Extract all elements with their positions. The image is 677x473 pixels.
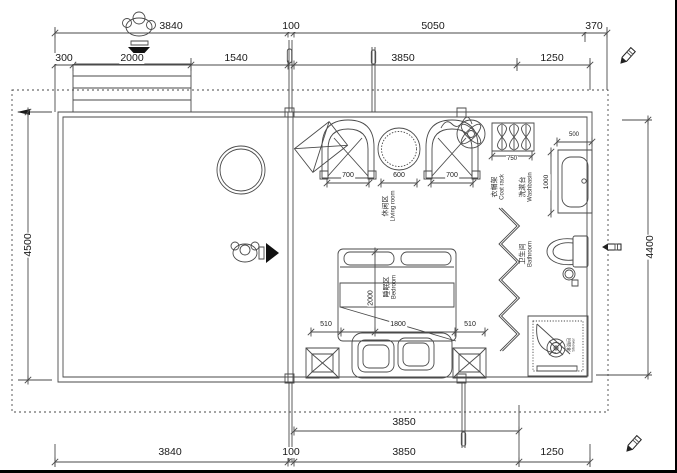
room-label-washbasin-en: Washbasin: [528, 172, 535, 201]
room-label-bathroom: 卫生间 Bathroom: [520, 241, 535, 267]
dim-chair-left-700: 700: [341, 172, 355, 179]
ceiling-fan-icon: [441, 117, 485, 148]
pen-icon-top-right: [619, 48, 636, 65]
dim-bottom2-3840: 3840: [157, 447, 182, 458]
dim-bottom2-100: 100: [281, 447, 301, 458]
dim-top-3840: 3840: [158, 21, 183, 32]
dim-top2-1540: 1540: [223, 53, 248, 64]
room-label-bathroom-en: Bathroom: [528, 241, 535, 267]
room-label-washbasin-zh: 洗漱台: [520, 172, 528, 201]
room-label-bedroom-en: Bedroom: [392, 275, 399, 299]
person-icon-room: [231, 242, 259, 262]
nightstand-right: [453, 348, 486, 378]
pen-icon-bottom-right: [625, 436, 642, 453]
dim-table-600: 600: [392, 172, 406, 179]
dim-right-4400: 4400: [645, 234, 656, 259]
dim-top-370: 370: [584, 21, 604, 32]
room-label-coat-rack: 衣帽架 Coat rack: [492, 174, 507, 200]
room-label-washbasin: 洗漱台 Washbasin: [520, 172, 535, 201]
dim-chair-right-700: 700: [445, 172, 459, 179]
nightstand-left: [306, 348, 339, 378]
dim-bed-1800: 1800: [389, 321, 407, 328]
steps: [73, 64, 191, 112]
dim-left-4500: 4500: [23, 232, 34, 257]
dimension-lines: [17, 27, 652, 467]
dim-basin-500: 500: [568, 132, 580, 138]
pen-icon-mid-right: [603, 244, 621, 250]
room-label-bedroom-zh: 睡眠区: [384, 275, 392, 299]
room-label-coat-rack-en: Coat rack: [500, 174, 507, 200]
room-label-living-en: Living room: [391, 190, 398, 221]
coffee-table: [378, 128, 420, 170]
bench-cushions: [352, 333, 452, 378]
room-label-bathroom-zh: 卫生间: [520, 241, 528, 267]
dim-top2-1250: 1250: [539, 53, 564, 64]
person-icon-entry: [123, 12, 156, 36]
dim-basin-1000: 1000: [544, 174, 551, 190]
side-table-diamond: [294, 122, 347, 173]
dim-top2-2000: 2000: [119, 53, 144, 64]
right-arrow-icon: [259, 243, 279, 263]
shower-enclosure: [528, 316, 588, 376]
dim-top2-300: 300: [54, 53, 74, 64]
room-label-coat-rack-zh: 衣帽架: [492, 174, 500, 200]
dim-top-5050: 5050: [420, 21, 445, 32]
room-label-shower-en: Shower: [571, 338, 575, 352]
room-label-living: 休闲区 Living room: [383, 190, 398, 221]
dim-coatrack-750: 750: [506, 156, 518, 162]
zigzag-partition: [499, 208, 520, 351]
site-boundary: [12, 90, 608, 412]
armchair-left: [320, 120, 376, 179]
room-label-bedroom: 睡眠区 Bedroom: [384, 275, 399, 299]
room-label-shower: 淋浴间 Shower: [566, 338, 576, 352]
dim-bottom2-1250: 1250: [539, 447, 564, 458]
floor-plan-page: 3840 100 5050 370 300 2000 1540 3850 125…: [0, 0, 677, 473]
dim-bottom2-3850: 3850: [391, 447, 416, 458]
dim-nightstand-left-510: 510: [319, 321, 333, 328]
dim-top2-3850: 3850: [390, 53, 415, 64]
floor-plan-canvas: [0, 0, 677, 473]
dim-nightstand-right-510: 510: [463, 321, 477, 328]
dim-bed-2000: 2000: [368, 289, 375, 307]
dim-bottom1-3850: 3850: [391, 417, 416, 428]
dim-top-100: 100: [281, 21, 301, 32]
room-label-living-zh: 休闲区: [383, 190, 391, 221]
toilet: [547, 236, 588, 286]
round-table: [217, 146, 265, 194]
coat-rack: [492, 123, 534, 151]
